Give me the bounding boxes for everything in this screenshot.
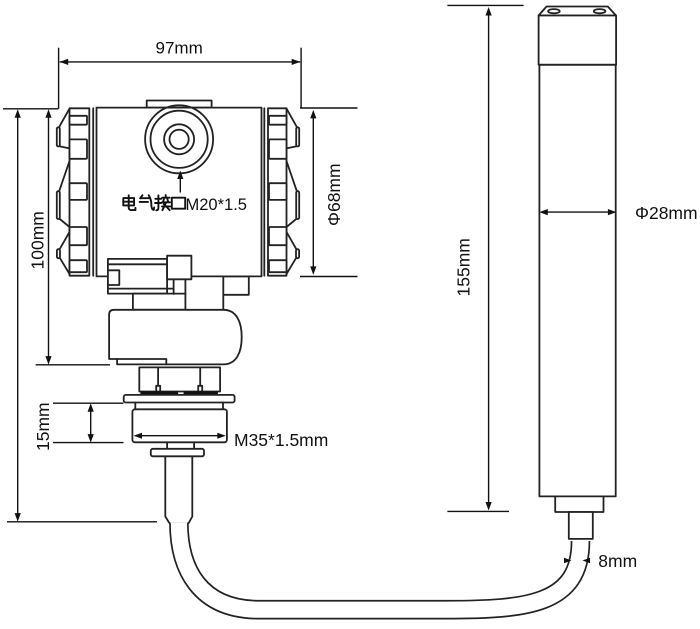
svg-text:Φ28mm: Φ28mm xyxy=(635,203,698,223)
svg-text:8mm: 8mm xyxy=(598,551,637,571)
svg-text:97mm: 97mm xyxy=(156,39,203,58)
svg-text:155mm: 155mm xyxy=(454,238,474,296)
svg-text:100mm: 100mm xyxy=(28,211,48,269)
svg-text:Φ68mm: Φ68mm xyxy=(324,163,344,226)
svg-text:15mm: 15mm xyxy=(33,402,53,451)
svg-text:M35*1.5mm: M35*1.5mm xyxy=(234,430,328,450)
svg-text:M20*1.5: M20*1.5 xyxy=(186,196,247,214)
